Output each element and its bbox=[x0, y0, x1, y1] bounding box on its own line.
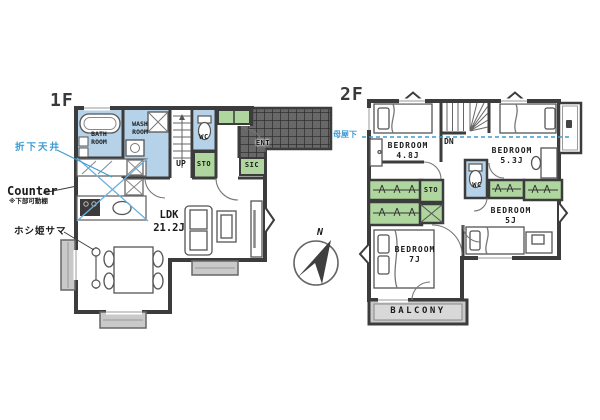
room-label-wc-2f: WC bbox=[472, 181, 481, 189]
sofa bbox=[185, 206, 212, 255]
bed-48 bbox=[374, 104, 432, 133]
room-label-balcony: BALCONY bbox=[390, 306, 445, 317]
armchair bbox=[217, 211, 236, 242]
room-label-wc-1f: WC bbox=[199, 133, 208, 141]
room-label-ldk: LDK 21.2J bbox=[153, 209, 185, 234]
wash-basin bbox=[126, 140, 144, 156]
wc2-room bbox=[465, 160, 487, 198]
bay-window-right bbox=[559, 203, 567, 223]
compass-icon bbox=[294, 240, 338, 285]
tv-board bbox=[251, 201, 262, 257]
washing-machine bbox=[148, 112, 168, 132]
room-label-storage-2f: STO bbox=[424, 186, 438, 194]
side-bay bbox=[559, 103, 581, 153]
room-label-bedroom-48: BEDROOM 4.8J bbox=[388, 141, 429, 160]
room-label-storage-1f: STO bbox=[197, 160, 211, 168]
room-label-bedroom-53: BEDROOM 5.3J bbox=[492, 146, 533, 165]
room-label-bath: BATH ROOM bbox=[91, 131, 107, 147]
room-label-washroom: WASH ROOM bbox=[132, 121, 148, 137]
bed-5 bbox=[466, 227, 524, 254]
annotation-roof-slope: 母屋下 bbox=[333, 130, 357, 140]
room-label-bedroom-7: BEDROOM 7J bbox=[395, 245, 436, 264]
room-label-sic: SIC bbox=[245, 161, 259, 169]
room-label-bedroom-5: BEDROOM 5J bbox=[491, 206, 532, 225]
bay-window-1f bbox=[265, 207, 274, 233]
annotation-lowered-ceiling: 折下天井 bbox=[15, 142, 61, 153]
floor2-plan bbox=[360, 93, 581, 325]
bay-mark bbox=[566, 120, 572, 128]
floor1-title: 1F bbox=[50, 90, 74, 112]
compass-north-label: N bbox=[317, 227, 323, 239]
room-label-entrance: ENT bbox=[256, 139, 270, 147]
bed-53 bbox=[500, 104, 556, 133]
annotation-counter-note: ※下部可動棚 bbox=[9, 198, 48, 206]
stairs-down-label: DN bbox=[444, 137, 454, 147]
floor2-title: 2F bbox=[340, 84, 364, 106]
bay-window-left bbox=[360, 244, 369, 264]
floorplan-canvas: 1F 2F BATH ROOM WASH ROOM WC STO UP SIC … bbox=[0, 0, 600, 420]
annotation-laundry-hanger: ホシ姫サマ bbox=[14, 226, 67, 237]
stairs-up-label: UP bbox=[176, 159, 186, 169]
